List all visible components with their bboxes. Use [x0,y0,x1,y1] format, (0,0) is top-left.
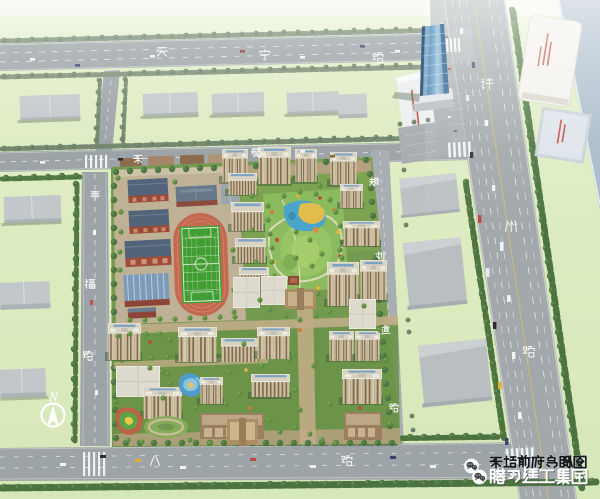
svg-text:N: N [48,389,59,404]
